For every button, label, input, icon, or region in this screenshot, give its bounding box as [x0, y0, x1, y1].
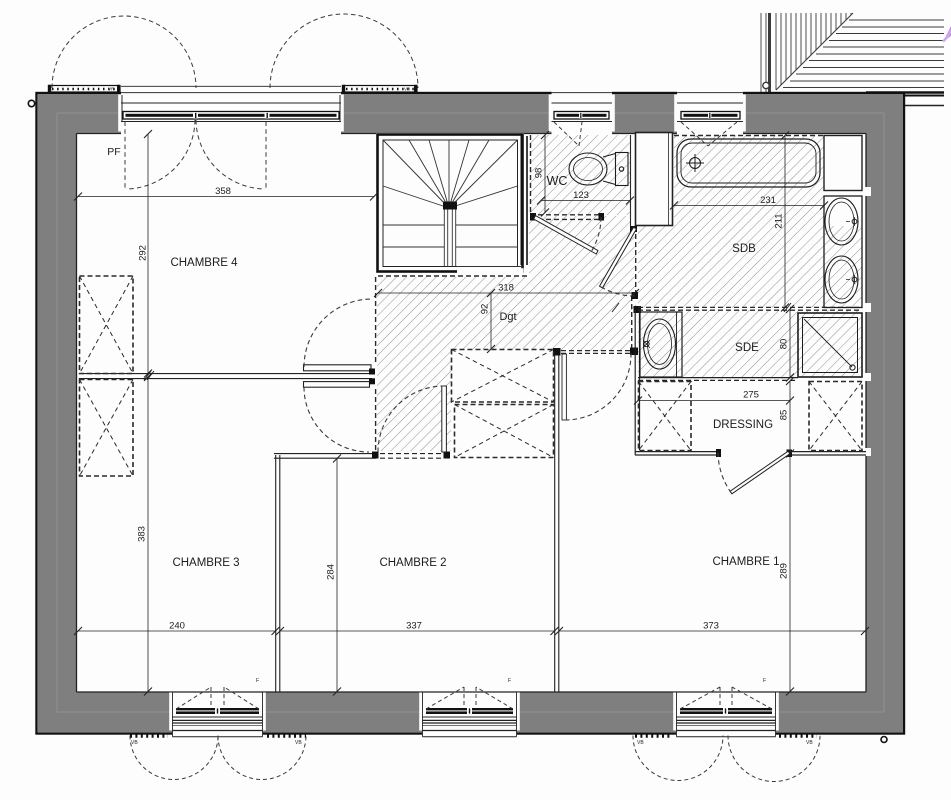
- svg-text:92: 92: [480, 304, 491, 315]
- svg-text:DRESSING: DRESSING: [713, 419, 773, 431]
- svg-text:318: 318: [498, 283, 514, 294]
- svg-text:CHAMBRE 2: CHAMBRE 2: [379, 557, 446, 569]
- svg-text:123: 123: [573, 190, 589, 201]
- svg-text:85: 85: [779, 410, 790, 421]
- svg-text:80: 80: [779, 339, 790, 350]
- svg-text:F: F: [256, 678, 259, 684]
- svg-text:CHAMBRE 3: CHAMBRE 3: [172, 557, 239, 569]
- svg-text:373: 373: [703, 621, 719, 632]
- svg-text:383: 383: [137, 526, 148, 542]
- svg-text:284: 284: [326, 564, 337, 580]
- svg-text:211: 211: [774, 213, 785, 228]
- svg-text:240: 240: [169, 621, 185, 632]
- svg-text:292: 292: [138, 245, 149, 261]
- svg-text:VR: VR: [404, 87, 411, 92]
- svg-text:VB: VB: [131, 740, 138, 746]
- svg-text:SDE: SDE: [735, 342, 759, 354]
- svg-text:231: 231: [760, 195, 776, 206]
- svg-text:VB: VB: [806, 740, 813, 746]
- svg-text:F: F: [763, 678, 766, 684]
- svg-text:VB: VB: [637, 740, 644, 746]
- svg-text:Dgt: Dgt: [499, 311, 516, 323]
- svg-text:337: 337: [406, 621, 422, 632]
- svg-text:SDB: SDB: [732, 243, 756, 255]
- svg-text:275: 275: [743, 390, 759, 401]
- svg-text:VR: VR: [108, 87, 115, 92]
- svg-text:CHAMBRE 1: CHAMBRE 1: [712, 556, 779, 568]
- svg-text:VB: VB: [295, 740, 302, 746]
- svg-text:F: F: [508, 678, 511, 684]
- svg-text:358: 358: [215, 186, 231, 197]
- svg-text:CHAMBRE 4: CHAMBRE 4: [170, 257, 238, 269]
- svg-text:PF: PF: [107, 146, 120, 158]
- svg-text:289: 289: [779, 563, 790, 579]
- svg-text:98: 98: [534, 168, 545, 179]
- svg-text:WC: WC: [547, 174, 568, 188]
